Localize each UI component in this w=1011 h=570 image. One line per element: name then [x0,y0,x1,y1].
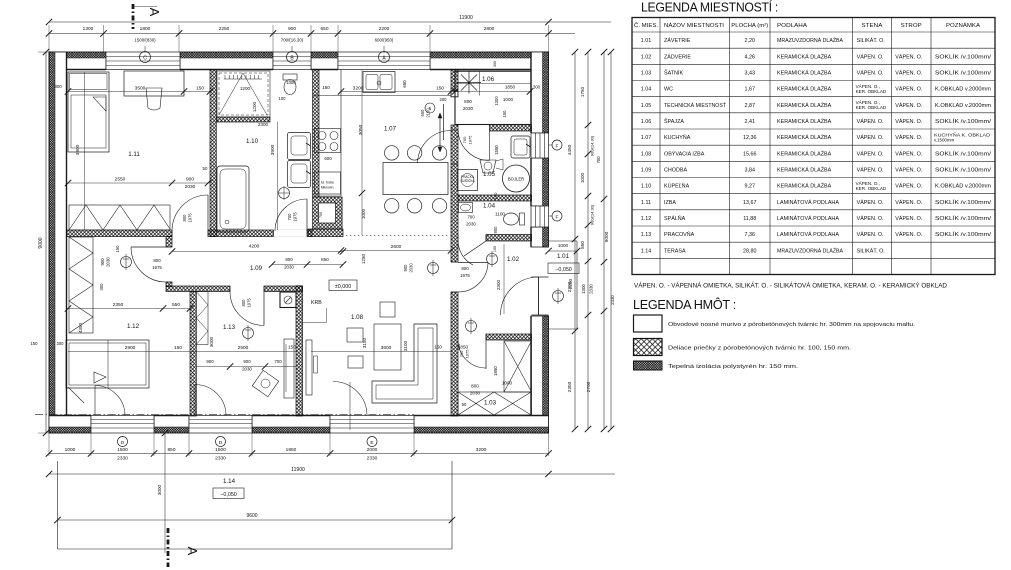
svg-text:3150: 3150 [362,337,367,348]
svg-text:A: A [185,547,200,556]
svg-text:VÁPEN. O.: VÁPEN. O. [895,215,922,222]
svg-text:SOKLÍK /v.100mm/: SOKLÍK /v.100mm/ [935,150,992,157]
svg-text:1000: 1000 [361,208,366,219]
svg-text:800: 800 [464,99,472,104]
svg-text:2200: 2200 [568,278,573,289]
svg-text:1.02: 1.02 [641,54,652,60]
svg-text:LEGENDA HMÔT :: LEGENDA HMÔT : [633,297,736,312]
svg-text:300: 300 [493,61,497,67]
svg-text:SOKLÍK /v.100mm/: SOKLÍK /v.100mm/ [935,69,992,76]
svg-text:1975: 1975 [152,265,162,270]
svg-text:2000: 2000 [367,447,378,453]
svg-text:1.14: 1.14 [641,248,652,254]
svg-text:3600: 3600 [381,345,392,351]
svg-text:2300: 2300 [258,122,269,127]
svg-text:700: 700 [462,136,467,143]
svg-text:SOKLÍK /v.100mm/: SOKLÍK /v.100mm/ [935,118,992,125]
svg-text:1975: 1975 [465,349,470,359]
svg-text:900: 900 [186,177,194,183]
svg-text:LEGENDA MIESTNOSTÍ :: LEGENDA MIESTNOSTÍ : [641,0,778,15]
svg-text:PODLAHA: PODLAHA [777,23,807,29]
svg-text:9000: 9000 [604,231,610,242]
svg-text:4450: 4450 [567,144,573,155]
svg-text:2700: 2700 [586,381,592,392]
svg-text:1.09: 1.09 [641,167,652,173]
svg-text:KER. OBKLAD: KER. OBKLAD [856,105,887,110]
svg-text:−0,050: −0,050 [555,267,572,273]
svg-text:K.OBKLAD v.2000mm: K.OBKLAD v.2000mm [935,103,991,109]
svg-text:1500: 1500 [117,447,128,453]
svg-text:1975: 1975 [188,213,193,223]
svg-text:600/(950): 600/(950) [375,38,394,43]
svg-text:600: 600 [324,156,332,161]
svg-text:700: 700 [287,213,292,221]
svg-text:v.1500mm: v.1500mm [934,137,955,142]
svg-text:900/(14.30): 900/(14.30) [590,204,595,225]
svg-text:±0,000: ±0,000 [335,284,351,290]
svg-text:850: 850 [580,241,585,249]
svg-text:3050: 3050 [358,124,364,135]
svg-text:11900: 11900 [459,15,473,21]
svg-text:150: 150 [434,345,442,350]
svg-text:1300: 1300 [83,26,94,32]
svg-text:1000: 1000 [503,97,514,102]
svg-text:800: 800 [153,258,161,263]
svg-text:3900: 3900 [75,144,81,155]
svg-text:1850: 1850 [458,345,469,350]
svg-text:1200: 1200 [252,101,257,112]
svg-text:KERAMICKÁ DLAŽBA: KERAMICKÁ DLAŽBA [777,85,832,93]
svg-text:STROP: STROP [901,23,922,29]
svg-text:2100: 2100 [426,108,431,118]
svg-text:300: 300 [99,283,104,291]
svg-text:800: 800 [241,299,246,307]
svg-text:3000: 3000 [157,484,162,495]
svg-text:700/(16.30): 700/(16.30) [281,38,304,43]
svg-text:1.09: 1.09 [250,265,263,272]
svg-text:150: 150 [196,86,204,92]
svg-text:1975: 1975 [460,273,470,278]
svg-text:VÁPEN. O.: VÁPEN. O. [857,166,884,173]
svg-text:1.11: 1.11 [128,151,140,158]
svg-text:KUCHYŇA: KUCHYŇA [664,134,691,141]
svg-text:KERAMICKÁ DLAŽBA: KERAMICKÁ DLAŽBA [777,52,832,60]
svg-text:IZBA: IZBA [664,200,676,206]
svg-text:ŠPAJZA: ŠPAJZA [664,118,684,125]
svg-text:SOKLÍK /v.100mm/: SOKLÍK /v.100mm/ [935,53,992,60]
svg-text:1.05: 1.05 [483,171,496,178]
svg-text:POZNÁMKA: POZNÁMKA [946,22,980,29]
svg-text:13,67: 13,67 [743,200,757,206]
svg-text:2900: 2900 [125,345,136,351]
svg-text:D: D [219,440,223,446]
svg-text:150: 150 [31,341,39,346]
svg-text:VÁPEN. O.: VÁPEN. O. [895,118,922,125]
svg-text:SOKLÍK /v.100mm/: SOKLÍK /v.100mm/ [935,166,992,173]
svg-text:3500: 3500 [135,86,146,92]
svg-text:1975: 1975 [247,298,252,308]
svg-text:2030: 2030 [463,106,474,111]
svg-text:3,43: 3,43 [745,70,756,76]
svg-text:900: 900 [288,26,296,32]
svg-text:850: 850 [321,257,329,262]
svg-text:NÁZOV MIESTNOSTI: NÁZOV MIESTNOSTI [664,22,724,29]
svg-text:900: 900 [493,226,498,234]
svg-text:VÁPEN. O.: VÁPEN. O. [857,69,884,76]
svg-text:BOJLER: BOJLER [508,177,524,182]
svg-text:STENA: STENA [861,23,882,29]
svg-text:VÁPEN. O.: VÁPEN. O. [857,231,884,238]
svg-text:2,41: 2,41 [745,119,756,125]
svg-text:1.08: 1.08 [351,314,364,321]
svg-text:2800: 2800 [484,26,495,32]
svg-text:1.05: 1.05 [641,103,652,109]
svg-text:1.11: 1.11 [641,200,651,206]
svg-text:VÁPEN. O.: VÁPEN. O. [895,69,922,76]
svg-text:2030: 2030 [470,391,481,396]
svg-text:150: 150 [436,86,444,91]
svg-text:VÁPEN. O.: VÁPEN. O. [895,134,922,141]
svg-text:150: 150 [115,245,120,253]
svg-text:1280: 1280 [361,253,366,264]
svg-text:VÁPEN. O.: VÁPEN. O. [895,102,922,109]
svg-text:VÁPEN. O. - VÁPENNÁ OMIETKA,: VÁPEN. O. - VÁPENNÁ OMIETKA, SILIKÁT. O.… [634,283,948,290]
svg-text:LAMINÁTOVÁ PODLAHA: LAMINÁTOVÁ PODLAHA [777,199,839,206]
svg-text:1.08: 1.08 [641,151,652,157]
svg-text:1000: 1000 [65,447,76,453]
svg-text:VÁPEN. O.: VÁPEN. O. [857,134,884,141]
svg-text:2330: 2330 [589,284,594,294]
svg-text:1000: 1000 [580,172,585,183]
svg-text:850: 850 [167,447,175,453]
svg-text:100: 100 [279,96,287,101]
svg-text:1850: 1850 [505,85,516,90]
svg-text:150: 150 [322,85,330,90]
svg-text:OBÝVACIA IZBA: OBÝVACIA IZBA [664,150,705,157]
svg-text:900: 900 [100,258,105,266]
svg-text:4,26: 4,26 [745,54,756,60]
svg-text:VÁPEN. O.: VÁPEN. O. [895,53,922,60]
svg-text:SUŠIČKA: SUŠIČKA [461,178,476,183]
svg-text:4200: 4200 [249,244,260,250]
svg-text:ZÁDVERIE: ZÁDVERIE [664,53,691,60]
svg-text:1,67: 1,67 [745,87,756,93]
svg-text:TERASA: TERASA [664,248,686,254]
svg-text:1.13: 1.13 [223,324,236,331]
svg-text:SOKLÍK /v.100mm/: SOKLÍK /v.100mm/ [935,215,992,222]
svg-text:4350: 4350 [78,322,83,333]
svg-text:PRACOVŇA: PRACOVŇA [664,231,695,238]
svg-text:3,84: 3,84 [745,167,756,173]
svg-text:150: 150 [493,192,498,199]
svg-text:KERAMICKÁ DLAŽBA: KERAMICKÁ DLAŽBA [777,117,832,125]
svg-text:VÁPEN. O.: VÁPEN. O. [857,215,884,222]
svg-text:KERAMICKÁ DLAŽBA: KERAMICKÁ DLAŽBA [777,133,832,141]
svg-text:1000: 1000 [502,381,513,386]
svg-text:KERAMICKÁ DLAŽBA: KERAMICKÁ DLAŽBA [777,149,832,157]
svg-text:650: 650 [420,109,425,117]
svg-text:1.12: 1.12 [641,216,652,222]
svg-text:Deliace priečky z pórobetónový: Deliace priečky z pórobetónových tvárnic… [668,346,851,352]
svg-text:1.07: 1.07 [641,135,652,141]
svg-text:700: 700 [319,212,323,218]
svg-text:800: 800 [285,257,293,262]
svg-text:1.06: 1.06 [482,76,495,83]
svg-text:2030: 2030 [284,265,294,270]
svg-text:2200: 2200 [379,26,390,32]
svg-text:SILIKÁT. O.: SILIKÁT. O. [857,247,885,254]
svg-text:1.06: 1.06 [641,119,652,125]
svg-text:1850: 1850 [493,366,498,376]
svg-text:650: 650 [402,80,407,88]
svg-text:2550: 2550 [115,177,126,183]
svg-text:SILIKÁT. O.: SILIKÁT. O. [857,37,885,44]
svg-text:1000: 1000 [558,243,569,248]
svg-text:1.02: 1.02 [507,256,520,263]
svg-text:SOKLÍK /v.100mm/: SOKLÍK /v.100mm/ [935,231,992,238]
svg-text:ZÁVETRIE: ZÁVETRIE [664,37,691,44]
svg-text:2030: 2030 [185,184,196,190]
svg-text:150: 150 [288,345,296,351]
svg-text:50: 50 [462,402,467,407]
svg-text:150: 150 [174,345,182,351]
svg-text:2600: 2600 [391,244,402,250]
svg-text:800: 800 [182,214,187,222]
svg-text:2350: 2350 [567,381,573,392]
svg-text:VÁPEN. O.,: VÁPEN. O., [856,180,880,186]
svg-text:KÚPEĽŇA: KÚPEĽŇA [664,183,690,190]
svg-text:KRB: KRB [311,300,322,306]
svg-text:100: 100 [493,246,497,252]
svg-text:2030: 2030 [409,263,414,273]
svg-text:700: 700 [274,359,282,364]
svg-text:−0,050: −0,050 [220,492,237,498]
svg-text:MRAZUVZDORNÁ DLAŽBA: MRAZUVZDORNÁ DLAŽBA [777,246,843,254]
svg-text:11,88: 11,88 [743,216,756,222]
svg-text:1300: 1300 [494,96,499,106]
svg-text:KERAMICKÁ DLAŽBA: KERAMICKÁ DLAŽBA [777,165,832,173]
svg-text:1.13: 1.13 [641,232,652,238]
svg-text:1.01: 1.01 [641,38,652,44]
svg-text:KER. OBKLAD: KER. OBKLAD [856,186,887,191]
svg-text:C: C [143,55,147,61]
svg-text:Tepelná izolácia polystyrén: Tepelná izolácia polystyrén hr. 150 mm. [668,364,798,370]
svg-text:2330: 2330 [215,456,226,462]
svg-text:300: 300 [54,84,62,89]
svg-text:LAMINÁTOVÁ PODLAHA: LAMINÁTOVÁ PODLAHA [777,215,839,222]
svg-text:12,36: 12,36 [743,135,757,141]
svg-text:2,20: 2,20 [745,38,756,44]
svg-text:3000: 3000 [209,336,214,347]
svg-text:2030: 2030 [242,367,252,372]
svg-text:3200: 3200 [476,447,487,453]
svg-text:MRAZUVZDORNÁ DLAŽBA: MRAZUVZDORNÁ DLAŽBA [777,36,843,44]
svg-text:K.OBKLAD v.2000mm: K.OBKLAD v.2000mm [935,87,991,93]
svg-text:650: 650 [320,26,328,32]
svg-text:1975: 1975 [293,212,298,222]
svg-text:1500/(830): 1500/(830) [134,38,156,43]
svg-text:15,66: 15,66 [743,151,757,157]
svg-text:El. trúba: El. trúba [321,181,334,185]
svg-text:900: 900 [243,359,251,364]
svg-text:1850: 1850 [286,447,297,453]
svg-text:150: 150 [502,110,507,118]
svg-text:VÁPEN. O.: VÁPEN. O. [857,199,884,206]
svg-text:VÁPEN. O.,: VÁPEN. O., [856,83,880,89]
svg-text:9000: 9000 [38,237,44,248]
svg-text:2,87: 2,87 [745,103,756,109]
svg-text:WC: WC [664,87,673,93]
svg-text:F: F [556,214,559,220]
svg-text:VÁPEN. O.: VÁPEN. O. [857,150,884,157]
svg-text:50: 50 [203,166,208,171]
svg-text:2250: 2250 [219,26,230,32]
svg-text:1200: 1200 [240,86,251,91]
svg-text:1.10: 1.10 [641,184,652,190]
svg-text:K.OBKLAD v.2000mm: K.OBKLAD v.2000mm [935,184,991,190]
svg-text:1550: 1550 [494,145,499,155]
svg-text:28,80: 28,80 [743,248,757,254]
svg-text:2350: 2350 [113,302,124,308]
svg-text:1.07: 1.07 [384,126,397,133]
svg-text:2330: 2330 [367,456,378,462]
svg-text:1.04: 1.04 [641,87,652,93]
svg-text:E: E [370,440,373,446]
svg-text:700: 700 [596,156,601,164]
svg-text:1.03: 1.03 [484,400,497,407]
svg-text:1.04: 1.04 [483,203,496,210]
svg-text:900: 900 [206,359,214,364]
svg-text:300: 300 [57,341,65,346]
svg-text:KERAMICKÁ DLAŽBA: KERAMICKÁ DLAŽBA [777,101,832,109]
svg-text:1.14: 1.14 [223,478,236,485]
svg-text:1000: 1000 [286,80,296,85]
svg-text:9600: 9600 [246,513,257,519]
svg-text:2330: 2330 [610,295,615,305]
svg-text:2330: 2330 [117,456,128,462]
svg-text:800: 800 [461,266,469,271]
svg-text:1300: 1300 [581,284,586,294]
svg-text:KERAMICKÁ DLAŽBA: KERAMICKÁ DLAŽBA [777,182,832,190]
svg-text:1.10: 1.10 [246,138,259,145]
svg-text:VÁPEN. O.: VÁPEN. O. [857,118,884,125]
svg-text:3900: 3900 [270,144,276,155]
svg-text:PLOCHA (m²): PLOCHA (m²) [731,23,768,29]
svg-text:1100: 1100 [495,212,505,217]
svg-text:KERAMICKÁ DLAŽBA: KERAMICKÁ DLAŽBA [777,68,832,76]
svg-text:1800: 1800 [140,26,151,32]
svg-text:SOKLÍK /v.100mm/: SOKLÍK /v.100mm/ [935,199,992,206]
svg-text:VÁPEN. O.: VÁPEN. O. [895,231,922,238]
svg-text:700: 700 [467,215,475,220]
svg-text:Č. MIES.: Č. MIES. [634,22,658,29]
svg-text:VÁPEN. O.,: VÁPEN. O., [856,99,880,105]
svg-text:SPÁLŇA: SPÁLŇA [664,215,686,222]
svg-text:9,27: 9,27 [745,184,756,190]
svg-text:2300: 2300 [496,279,501,290]
svg-text:2030: 2030 [466,222,476,227]
svg-text:1500: 1500 [215,447,226,453]
svg-text:1.12: 1.12 [127,323,140,330]
svg-text:A: A [147,8,162,17]
svg-text:Obvodové nosné murivo z pórobe: Obvodové nosné murivo z pórobetónových t… [668,322,915,328]
svg-text:1750: 1750 [580,86,585,97]
svg-text:800: 800 [471,384,479,389]
svg-text:2500: 2500 [238,345,249,351]
svg-text:VÁPEN. O.: VÁPEN. O. [895,199,922,206]
svg-text:1975: 1975 [468,135,473,145]
svg-text:11900: 11900 [291,467,305,473]
svg-text:KER. OBKLAD: KER. OBKLAD [856,89,887,94]
svg-text:200: 200 [440,97,448,102]
svg-text:2030: 2030 [106,257,111,267]
svg-text:VÁPEN. O.: VÁPEN. O. [857,53,884,60]
svg-text:1.01: 1.01 [557,253,570,260]
svg-text:900/(14.30): 900/(14.30) [590,135,595,156]
svg-text:VÁPEN. O.: VÁPEN. O. [895,86,922,93]
svg-text:550: 550 [172,302,180,308]
svg-text:CHODBA: CHODBA [664,167,687,173]
svg-text:D: D [121,440,125,446]
svg-text:1.03: 1.03 [641,70,652,76]
svg-text:7,36: 7,36 [745,232,756,238]
svg-text:900: 900 [403,264,408,272]
svg-text:300: 300 [533,85,541,90]
svg-text:3100: 3100 [403,340,408,351]
svg-text:LAMINÁTOVÁ PODLAHA: LAMINÁTOVÁ PODLAHA [777,231,839,238]
svg-text:VÁPEN. O.: VÁPEN. O. [895,183,922,190]
svg-text:TECHNICKÁ MIESTNOSŤ: TECHNICKÁ MIESTNOSŤ [664,101,727,109]
svg-text:VÁPEN. O.: VÁPEN. O. [895,150,922,157]
svg-text:Mikrovln.: Mikrovln. [321,186,335,190]
svg-text:ŠATNÍK: ŠATNÍK [664,69,683,76]
svg-text:VÁPEN. O.: VÁPEN. O. [895,166,922,173]
svg-text:F: F [556,143,559,149]
